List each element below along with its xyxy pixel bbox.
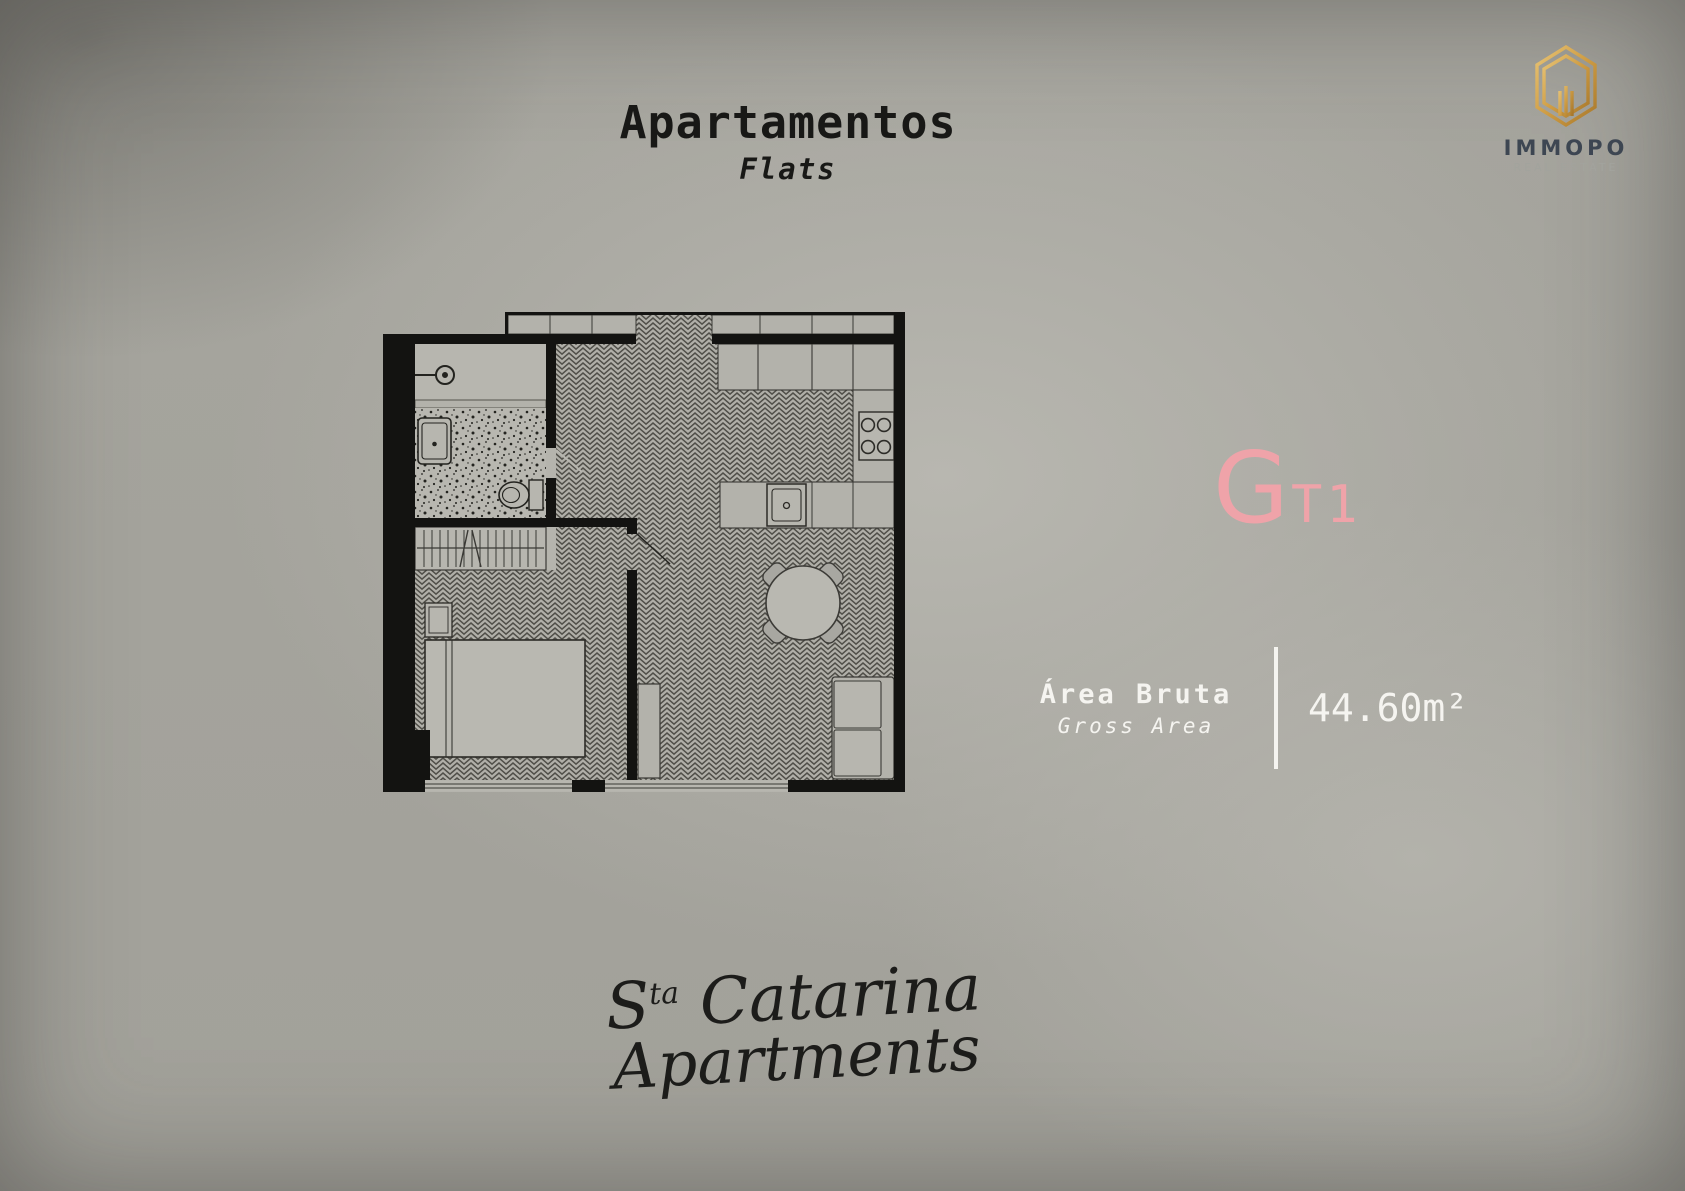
project-signature: Sta Catarina Apartments (604, 958, 985, 1097)
brand-logo: IMMOPO REAL ESTATE (1500, 44, 1632, 174)
gross-area-labels: Área Bruta Gross Area (1000, 679, 1272, 738)
toilet (499, 480, 543, 510)
entry-passage-floor (636, 315, 712, 344)
kitchen-sink (767, 484, 806, 526)
entry-shelf (415, 400, 546, 408)
sideboard (638, 684, 660, 778)
wardrobe-rail (415, 527, 546, 570)
vertical-divider (1274, 647, 1278, 769)
brand-name: IMMOPO (1500, 136, 1632, 160)
gross-area-row: Área Bruta Gross Area 44.60m² (1000, 645, 1468, 771)
stove-hob (859, 412, 894, 460)
signature-line2: Apartments (608, 1019, 986, 1097)
window-bedroom (425, 781, 572, 791)
area-value: 44.60m² (1308, 686, 1468, 730)
brand-tagline: REAL ESTATE (1500, 161, 1632, 174)
kitchen-island-counter (720, 482, 894, 528)
area-label-en: Gross Area (1000, 714, 1272, 738)
page-subtitle: Flats (619, 152, 956, 186)
header-block: Apartamentos Flats (619, 98, 956, 186)
window-living (605, 781, 788, 791)
dining-table (766, 566, 840, 640)
unit-type-label: GT1 (1213, 440, 1362, 538)
brochure-page: Apartamentos Flats IMMOPO REAL ESTATE GT… (0, 0, 1685, 1191)
page-title: Apartamentos (619, 98, 956, 148)
floorplan-t1 (380, 312, 905, 804)
entry-room (415, 344, 546, 400)
unit-letter: G (1213, 440, 1289, 538)
nightstand (425, 603, 452, 637)
unit-code: T1 (1291, 475, 1362, 535)
house-outline-icon (1533, 44, 1599, 128)
signature-superscript: ta (648, 976, 680, 1013)
area-label-pt: Área Bruta (1000, 679, 1272, 710)
bathroom-sink (418, 418, 451, 464)
sofa (832, 677, 894, 779)
bed (425, 640, 585, 757)
